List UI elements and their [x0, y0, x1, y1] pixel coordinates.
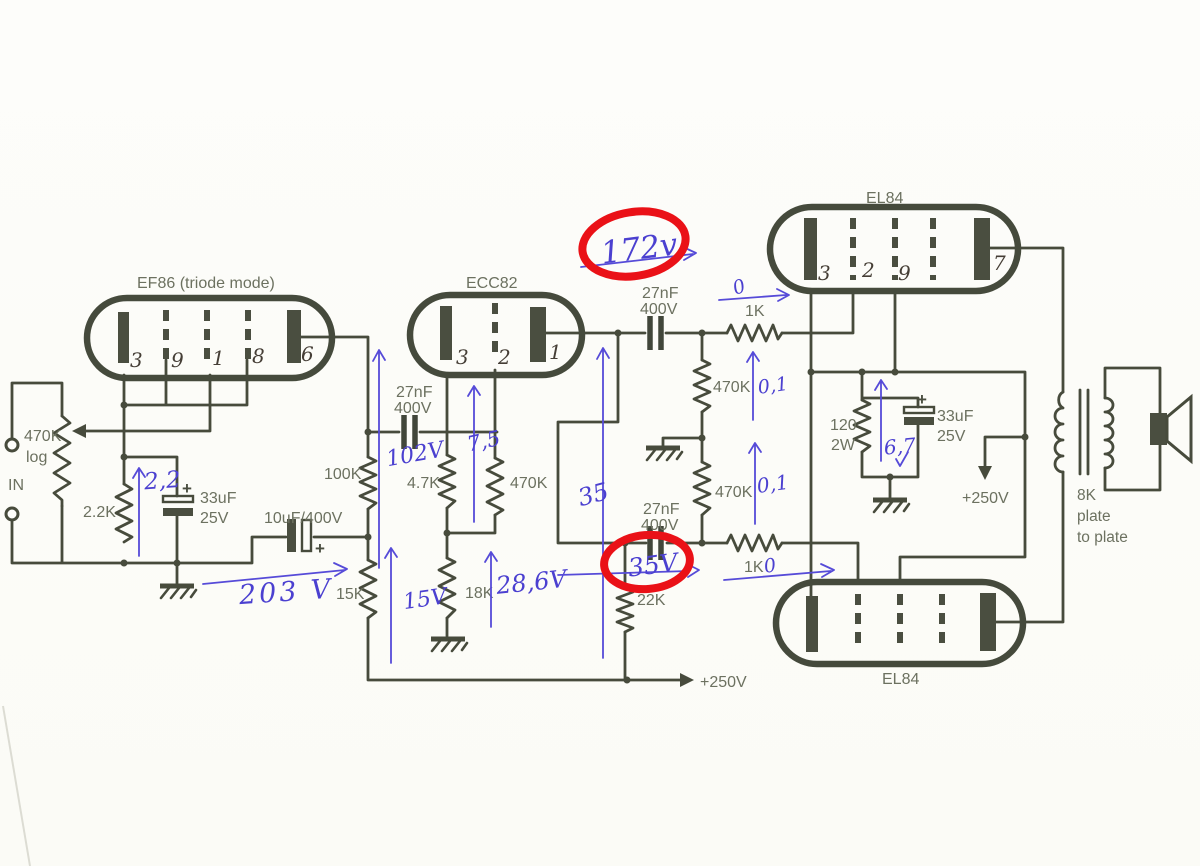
- input-terminal-top[interactable]: [6, 439, 18, 451]
- pin-ecc82-3: 3: [456, 345, 469, 369]
- label-r18k: 18K: [465, 585, 494, 602]
- label-r1k-top: 1K: [745, 303, 765, 320]
- annotation-zero-bottom: 0: [762, 554, 778, 578]
- pin-el84-7: 7: [993, 251, 1006, 275]
- resistor-470k-upper: [694, 360, 710, 412]
- label-r22k: 22K: [637, 592, 666, 609]
- label-c33u-right-value: 33uF: [937, 408, 974, 425]
- tube-label-el84-top: EL84: [866, 190, 903, 207]
- label-r2k2: 2.2K: [83, 504, 116, 521]
- cap-33uf-left: [163, 496, 193, 516]
- label-c27n-bot-value: 27nF: [643, 501, 680, 518]
- pin-el84-3: 3: [818, 261, 831, 285]
- annotation-01-lower: 0,1: [755, 470, 790, 498]
- polarity-plus-10uf: +: [315, 539, 325, 558]
- label-c33u-left-value: 33uF: [200, 490, 237, 507]
- tube-amplifier-schematic: EF86 (triode mode) ECC82 EL84 EL84 470K …: [0, 0, 1200, 866]
- pin-numbers: 3 9 1 8 6 3 2 1 3 2 9 7: [130, 251, 1006, 372]
- label-r4k7: 4.7K: [407, 475, 440, 492]
- annotation-01-upper: 0,1: [756, 373, 789, 399]
- tube-ef86: [87, 298, 332, 378]
- label-xfmr-3: to plate: [1077, 529, 1128, 546]
- resistor-2k2: [116, 484, 132, 542]
- label-c27n-top-value: 27nF: [642, 285, 679, 302]
- resistor-1k-top: [727, 325, 782, 341]
- pin-el84-2: 2: [861, 258, 875, 282]
- cap-33uf-right: [904, 407, 934, 425]
- label-c27n1-voltage: 400V: [394, 400, 432, 417]
- label-c27n-top-voltage: 400V: [640, 301, 678, 318]
- annotation-203v: 203 V: [237, 574, 335, 612]
- resistor-470k-lower: [694, 462, 710, 515]
- label-supply-bottom: +250V: [700, 674, 747, 691]
- label-r470k-upper: 470K: [713, 379, 751, 396]
- label-r470k-mid: 470K: [510, 475, 548, 492]
- label-c27n1-value: 27nF: [396, 384, 433, 401]
- ground-symbol-input: [160, 586, 196, 598]
- pin-ef86-6: 6: [301, 342, 314, 366]
- ground-symbol-18k: [431, 639, 467, 651]
- input-terminal-bottom[interactable]: [6, 508, 18, 520]
- annotation-35: 35: [575, 477, 612, 512]
- resistor-22k: [617, 588, 633, 632]
- label-input: IN: [8, 477, 24, 494]
- label-r120-power: 2W: [831, 437, 856, 454]
- pin-ecc82-2: 2: [497, 345, 511, 369]
- pin-el84-9: 9: [898, 261, 911, 285]
- annotation-zero-top: 0: [730, 275, 748, 300]
- tube-label-ef86: EF86 (triode mode): [137, 275, 275, 292]
- tube-label-el84-bottom: EL84: [882, 671, 919, 688]
- ground-symbol-cathode: [873, 500, 909, 512]
- resistor-4k7: [439, 455, 455, 508]
- label-r15k: 15K: [336, 586, 365, 603]
- output-transformer: [1055, 390, 1113, 474]
- label-r1k-bot: 1K: [744, 559, 764, 576]
- pin-ef86-9: 9: [171, 348, 184, 372]
- label-pot-value: 470K: [24, 428, 62, 445]
- annotation-28-6v: 28,6V: [494, 564, 571, 600]
- annotation-7-5: 7,5: [465, 426, 503, 456]
- junction-dots: [121, 330, 1029, 684]
- label-c33u-left-voltage: 25V: [200, 510, 229, 527]
- tube-el84-top: [770, 207, 1018, 291]
- label-xfmr-2: plate: [1077, 508, 1111, 525]
- label-supply-mid: +250V: [962, 490, 1009, 507]
- annotation-15v: 15V: [402, 584, 451, 615]
- cap-27nf-top: [650, 316, 661, 350]
- paper-crease: [3, 706, 30, 866]
- ground-symbol-470k: [646, 448, 682, 460]
- tube-el84-bottom: [776, 582, 1023, 664]
- speaker-icon: [1150, 397, 1191, 461]
- label-pot-taper: log: [26, 449, 47, 466]
- scanned-schematic-page: EF86 (triode mode) ECC82 EL84 EL84 470K …: [0, 0, 1200, 866]
- label-r470k-lower: 470K: [715, 484, 753, 501]
- printed-labels: EF86 (triode mode) ECC82 EL84 EL84 470K …: [8, 190, 1128, 691]
- resistor-470k-mid: [487, 458, 503, 515]
- label-xfmr-1: 8K: [1077, 487, 1097, 504]
- resistor-1k-bottom: [727, 535, 782, 551]
- annotation-2-2: 2,2: [142, 467, 181, 496]
- label-c10u: 10uF/400V: [264, 510, 343, 527]
- pin-ecc82-1: 1: [549, 340, 562, 364]
- resistor-100k: [360, 457, 376, 509]
- pot-wiper-arrow: [72, 424, 86, 438]
- label-c33u-right-voltage: 25V: [937, 428, 966, 445]
- polarity-plus-33uf-left: +: [182, 479, 192, 498]
- pin-ef86-8: 8: [252, 344, 265, 368]
- annotation-6-7: 6,7: [883, 433, 917, 460]
- supply-arrow-bottom: [680, 673, 694, 687]
- tube-label-ecc82: ECC82: [466, 275, 518, 292]
- label-r100k: 100K: [324, 466, 362, 483]
- pin-ef86-3: 3: [130, 348, 143, 372]
- pin-ef86-1: 1: [212, 346, 225, 370]
- label-r120-value: 120: [830, 417, 857, 434]
- polarity-plus-33uf-right: +: [917, 390, 927, 409]
- supply-arrow-mid: [978, 466, 992, 480]
